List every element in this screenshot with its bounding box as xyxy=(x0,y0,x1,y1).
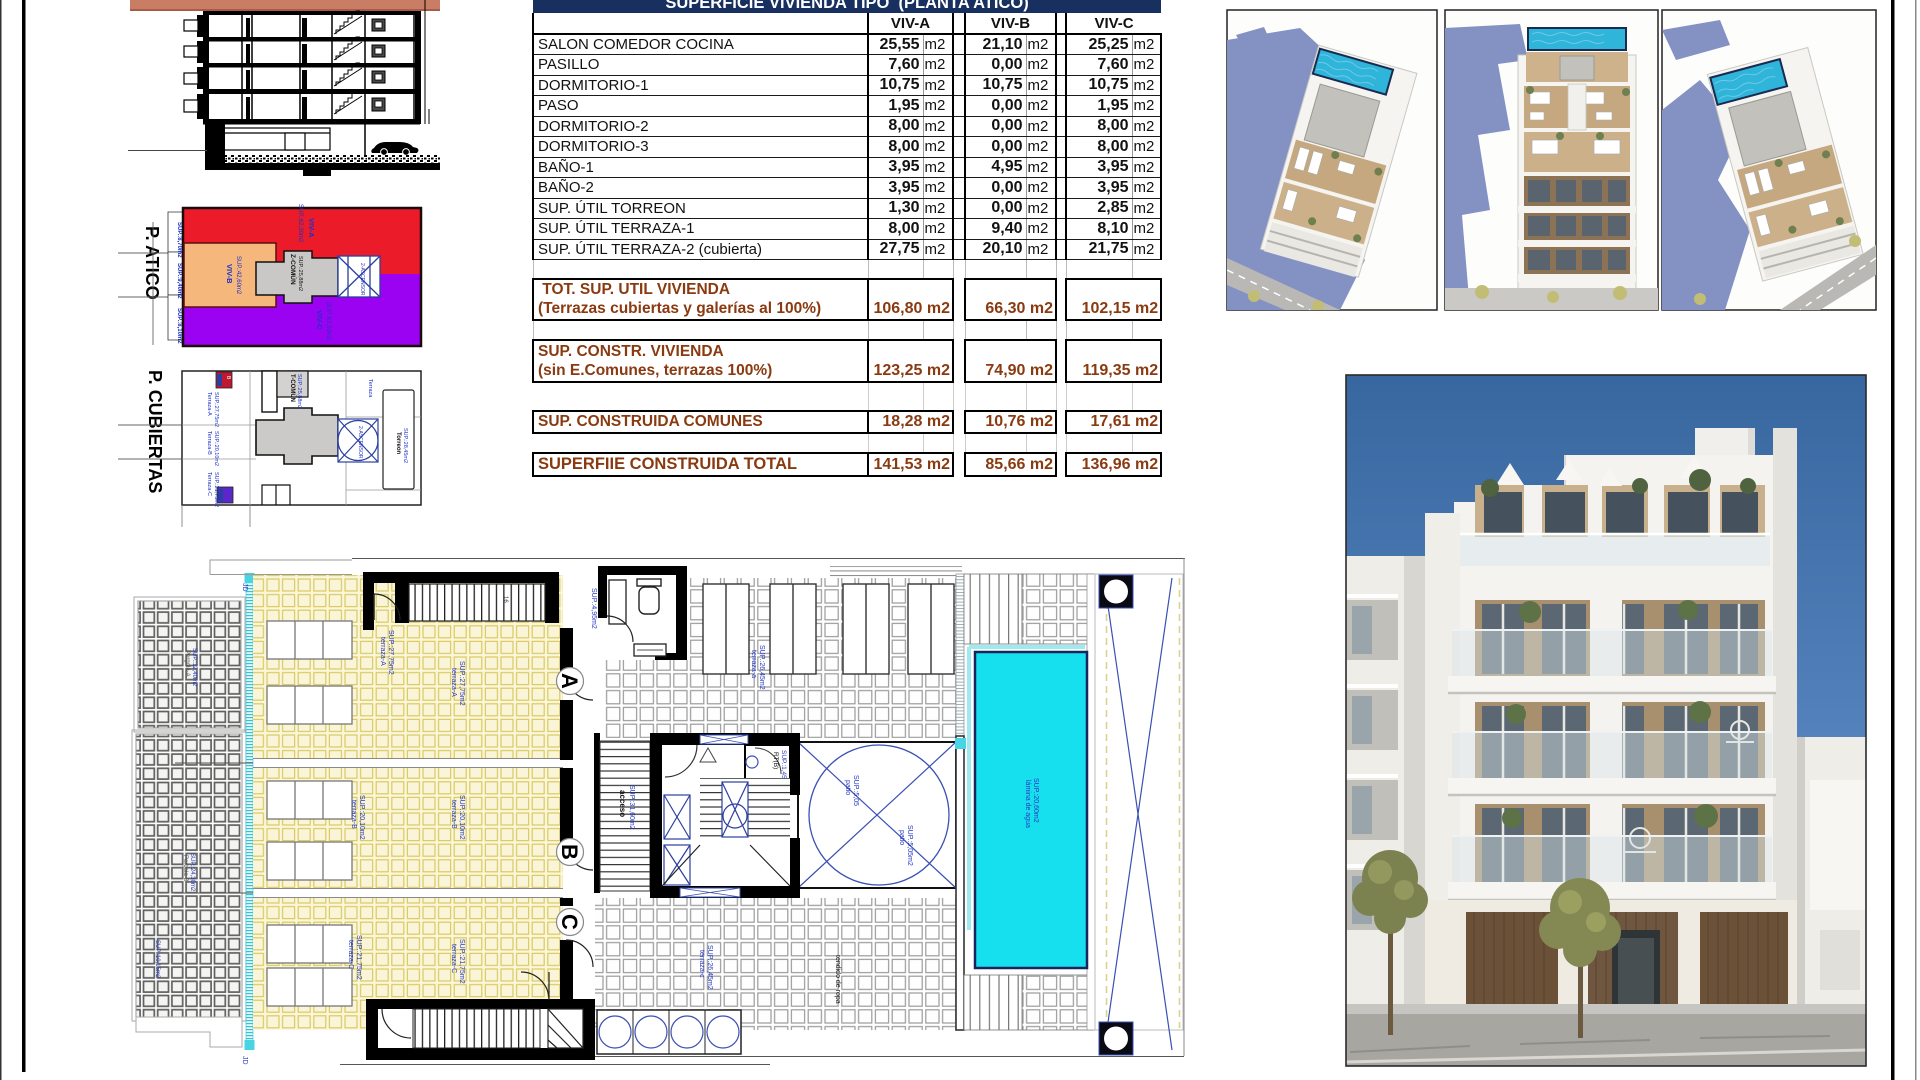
svg-text:SUP.:9,40m2: SUP.:9,40m2 xyxy=(176,263,182,299)
svg-text:SUP.:42,60m2: SUP.:42,60m2 xyxy=(235,256,241,295)
svg-text:patio: patio xyxy=(898,830,905,845)
svg-text:SUP.:25,88m2: SUP.:25,88m2 xyxy=(296,374,302,409)
svg-text:terraza-B: terraza-B xyxy=(450,800,457,829)
svg-text:SUP.:31,60m2: SUP.:31,60m2 xyxy=(628,785,635,830)
svg-text:2-ASCENSOR: 2-ASCENSOR xyxy=(359,263,365,296)
svg-text:VIV-B: VIV-B xyxy=(225,264,234,284)
svg-text:T-COMÚN: T-COMÚN xyxy=(289,374,296,402)
svg-text:P. CUBIERTAS: P. CUBIERTAS xyxy=(145,370,165,493)
svg-text:terraza-c: terraza-c xyxy=(698,950,705,978)
svg-text:lámina de agua: lámina de agua xyxy=(1024,780,1031,828)
svg-text:SUP.:27,75m2: SUP.:27,75m2 xyxy=(387,630,394,675)
svg-text:SUP.:10,15m2: SUP.:10,15m2 xyxy=(154,940,160,979)
svg-text:RT(B): RT(B) xyxy=(772,752,779,769)
svg-text:SUP.:62,50m2: SUP.:62,50m2 xyxy=(325,302,331,341)
svg-text:Pergola-A: Pergola-A xyxy=(184,650,190,677)
svg-text:SUP.:27,75m2: SUP.:27,75m2 xyxy=(458,661,465,706)
svg-text:SUP.:26,45m2: SUP.:26,45m2 xyxy=(706,945,713,990)
svg-text:16: 16 xyxy=(502,596,508,603)
svg-text:acceso: acceso xyxy=(618,790,627,817)
svg-text:Terraza-B: Terraza-B xyxy=(206,431,212,455)
svg-text:Torreon: Torreon xyxy=(395,432,401,455)
svg-text:SUP.:20,60m2: SUP.:20,60m2 xyxy=(1032,778,1039,823)
svg-text:terraza-C: terraza-C xyxy=(450,944,457,973)
svg-text:SUP.:26,45m2: SUP.:26,45m2 xyxy=(758,645,765,690)
svg-text:Terraza-A: Terraza-A xyxy=(206,392,212,416)
svg-text:JD: JD xyxy=(241,1056,248,1065)
svg-text:SUP.:5,05m2: SUP.:5,05m2 xyxy=(906,825,913,866)
svg-text:Pergola-B: Pergola-B xyxy=(182,855,188,882)
svg-text:JD: JD xyxy=(241,583,248,592)
svg-text:SUP.:12,40m2: SUP.:12,40m2 xyxy=(191,648,197,687)
svg-text:terraza-A: terraza-A xyxy=(450,668,457,697)
svg-text:terraza-B: terraza-B xyxy=(350,800,357,829)
svg-text:terraza-a: terraza-a xyxy=(750,650,757,678)
svg-text:2-ASCENSOR: 2-ASCENSOR xyxy=(357,426,363,459)
svg-text:SUP.:8,10m2: SUP.:8,10m2 xyxy=(176,308,182,344)
svg-text:SUP.:5,05: SUP.:5,05 xyxy=(852,775,859,806)
svg-text:Terraza: Terraza xyxy=(367,379,373,398)
svg-text:SUP.:25,88m2: SUP.:25,88m2 xyxy=(297,256,303,291)
svg-text:C: C xyxy=(557,914,582,930)
svg-text:SUP.:20,10m2: SUP.:20,10m2 xyxy=(213,431,219,466)
svg-text:SUP.:4,95m2: SUP.:4,95m2 xyxy=(590,588,597,629)
svg-text:SUP.:20,10m2: SUP.:20,10m2 xyxy=(458,795,465,840)
svg-text:Terraza-C: Terraza-C xyxy=(206,472,212,496)
svg-text:P. ATICO: P. ATICO xyxy=(142,226,162,300)
svg-text:Z-COMÚN: Z-COMÚN xyxy=(289,254,298,285)
svg-text:SUP.:21,75m2: SUP.:21,75m2 xyxy=(213,472,219,507)
svg-text:VIV-C: VIV-C xyxy=(315,310,324,330)
svg-text:SUP.:24,30m2: SUP.:24,30m2 xyxy=(189,853,195,892)
svg-text:tendido de ropa: tendido de ropa xyxy=(834,955,841,1004)
svg-text:patio: patio xyxy=(844,780,851,795)
svg-text:B: B xyxy=(557,844,582,860)
svg-text:SUP.:8,70m2: SUP.:8,70m2 xyxy=(176,222,182,258)
svg-text:VIV-A: VIV-A xyxy=(307,218,316,238)
svg-text:SUP.:62,30m2: SUP.:62,30m2 xyxy=(297,204,303,243)
svg-text:terraza-C: terraza-C xyxy=(347,940,354,969)
svg-text:SUP.:21,75m2: SUP.:21,75m2 xyxy=(355,935,362,980)
svg-text:SUP.:20,10m2: SUP.:20,10m2 xyxy=(358,795,365,840)
svg-text:SUP.:21,75m2: SUP.:21,75m2 xyxy=(458,939,465,984)
svg-text:SUP.:1,45: SUP.:1,45 xyxy=(780,750,787,779)
svg-text:terraza-A: terraza-A xyxy=(379,637,386,666)
svg-text:A: A xyxy=(557,673,582,689)
svg-text:SUP.:27,75m2: SUP.:27,75m2 xyxy=(213,392,219,427)
svg-text:SUP.:28,45m2: SUP.:28,45m2 xyxy=(402,428,408,463)
